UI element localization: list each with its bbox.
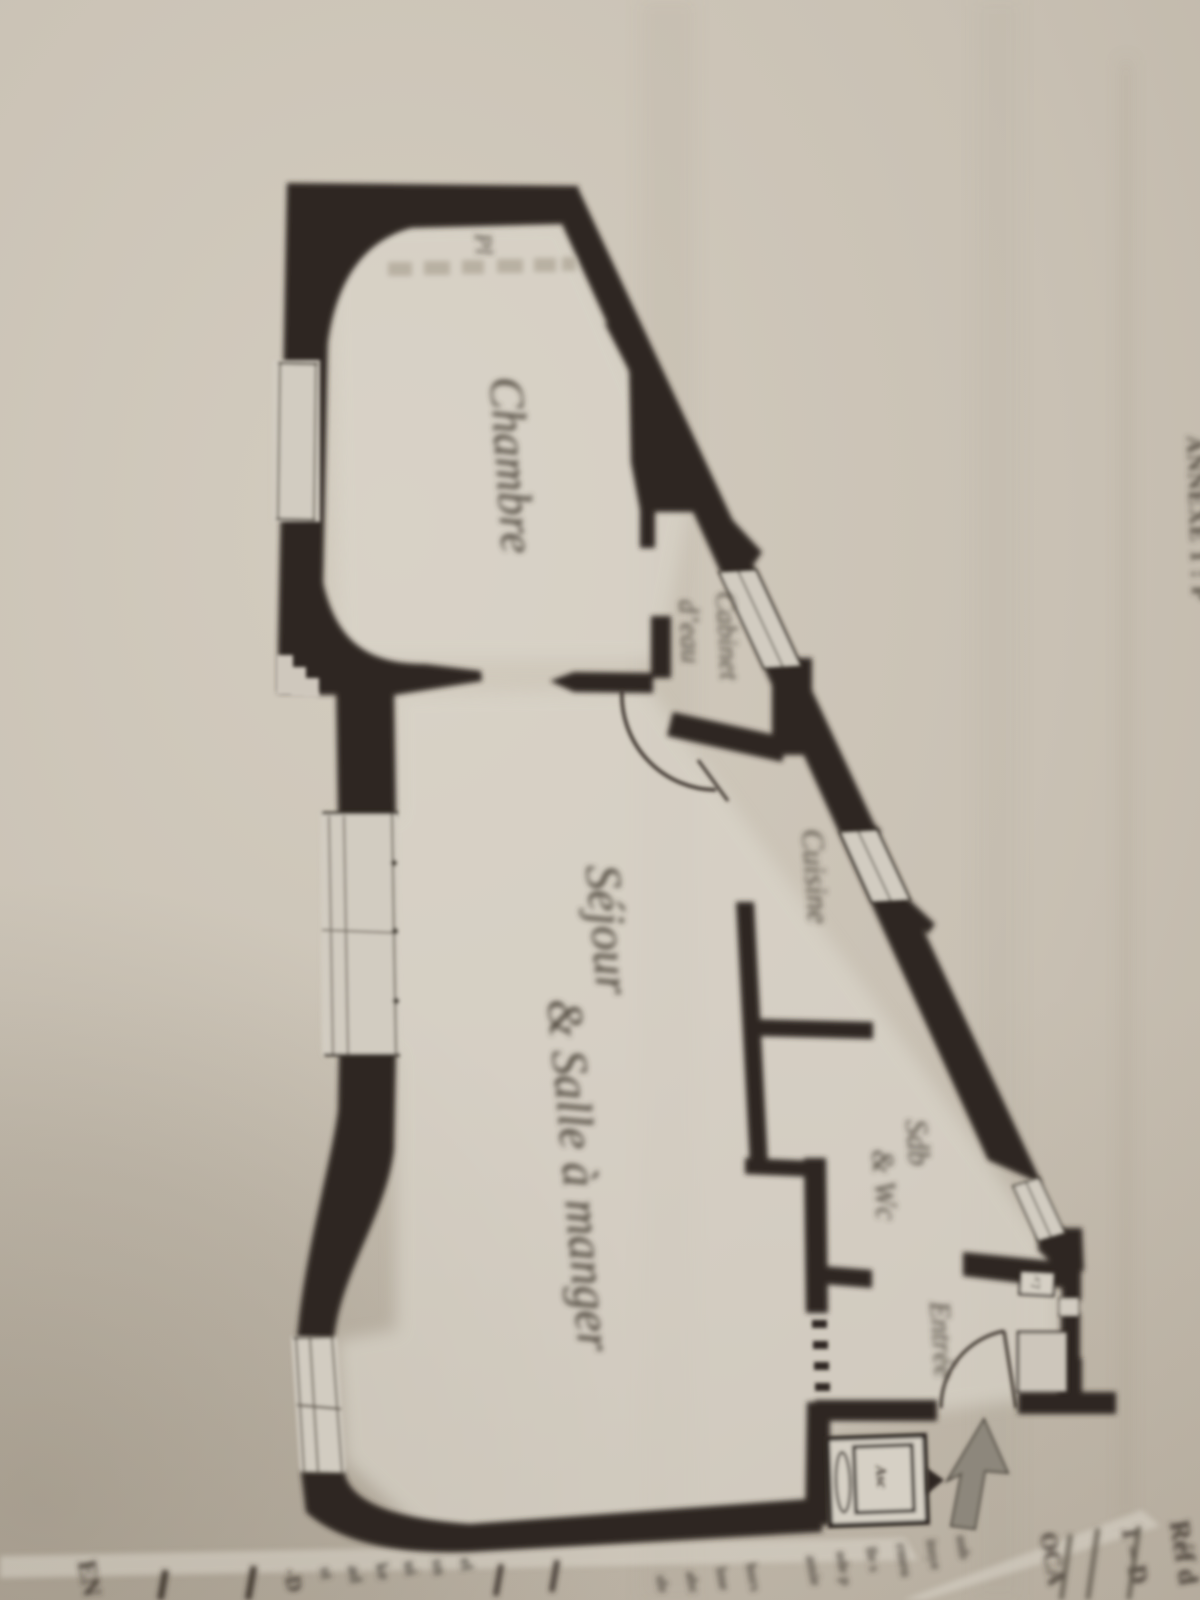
svg-text:Cabinet: Cabinet	[709, 591, 745, 682]
svg-text:Séjour: Séjour	[575, 862, 642, 997]
svg-text:& Wc: & Wc	[865, 1148, 905, 1222]
svg-text:Lv: Lv	[1027, 1275, 1043, 1290]
svg-text:d’eau: d’eau	[672, 599, 706, 664]
svg-text:Pl: Pl	[469, 232, 497, 256]
svg-text:Sdb: Sdb	[899, 1118, 937, 1167]
svg-text:Asc: Asc	[872, 1464, 890, 1489]
svg-text:sfe: sfe	[652, 1574, 671, 1594]
svg-text:-D: -D	[279, 1567, 308, 1594]
svg-text:Cuisine: Cuisine	[795, 828, 837, 925]
svg-text:Entrée: Entrée	[923, 1299, 960, 1379]
